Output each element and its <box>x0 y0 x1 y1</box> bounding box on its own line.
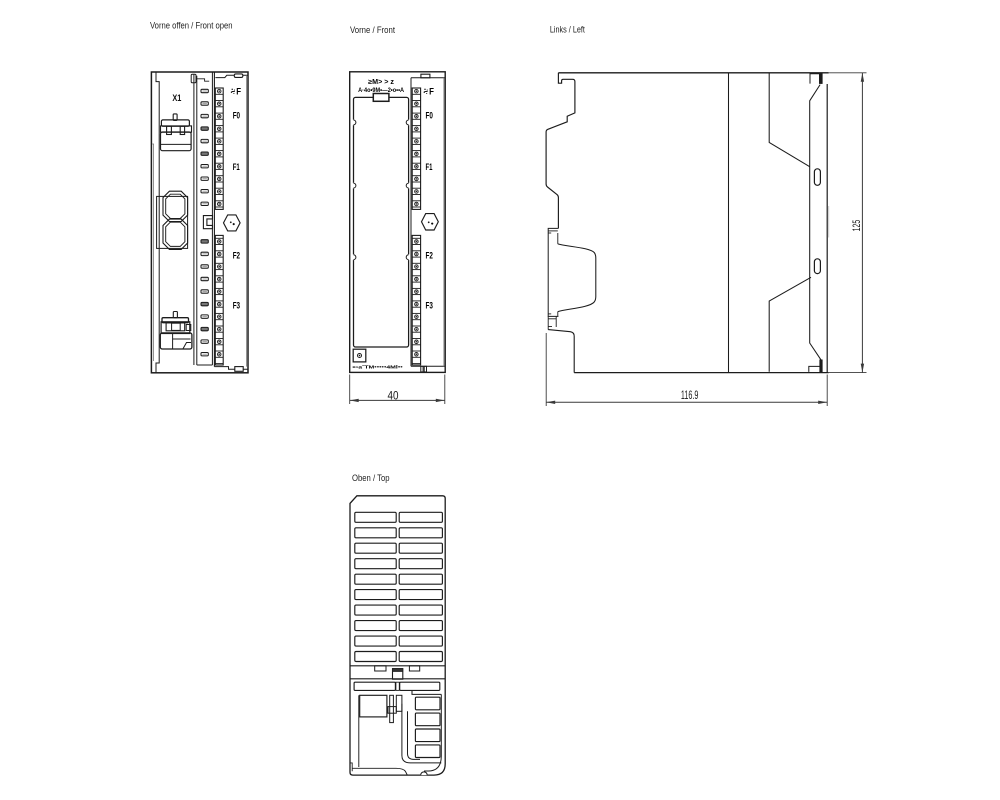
svg-text:X1: X1 <box>172 93 181 103</box>
svg-text:F: F <box>429 86 434 96</box>
svg-text:F3: F3 <box>233 301 240 311</box>
svg-text:F0: F0 <box>426 111 433 121</box>
svg-text:Links / Left: Links / Left <box>550 24 585 34</box>
svg-text:F3: F3 <box>426 301 433 311</box>
svg-text:»›aˇTM•••••4Ml••: »›aˇTM•••••4Ml•• <box>352 365 403 370</box>
svg-text:F1: F1 <box>233 162 240 172</box>
svg-text:≥M> > z: ≥M> > z <box>368 79 394 86</box>
svg-text:116.9: 116.9 <box>681 390 699 402</box>
svg-text:F2: F2 <box>233 251 240 261</box>
svg-text:Oben / Top: Oben / Top <box>352 473 390 483</box>
svg-text:F0: F0 <box>233 111 240 121</box>
svg-text:Vorne / Front: Vorne / Front <box>350 25 395 35</box>
svg-text:F2: F2 <box>426 251 433 261</box>
svg-text:125: 125 <box>851 220 863 232</box>
svg-text:F: F <box>236 86 241 96</box>
svg-text:F1: F1 <box>426 162 433 172</box>
svg-text:A·4o•9M•—2•o••A: A·4o•9M•—2•o••A <box>358 87 404 94</box>
svg-text:40: 40 <box>388 390 399 402</box>
svg-text:Vorne offen / Front open: Vorne offen / Front open <box>150 20 233 30</box>
